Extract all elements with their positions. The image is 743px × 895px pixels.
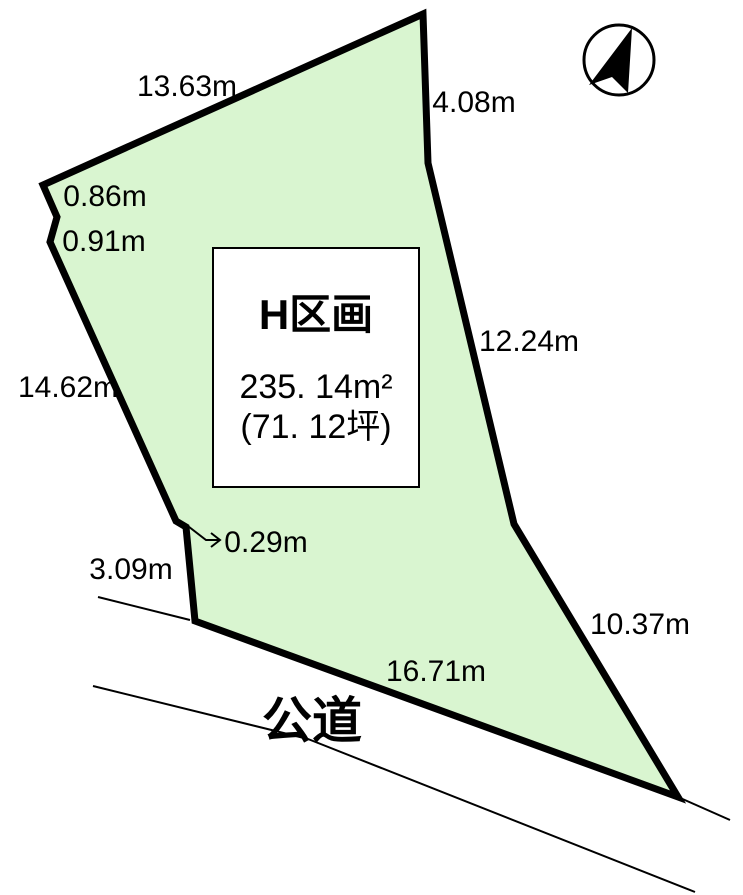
dimension-label-left-edge: 14.62m — [18, 373, 118, 403]
plot-diagram: 13.63m 4.08m 12.24m 10.37m 16.71m 14.62m… — [0, 0, 743, 895]
plot-info-box: H区画 235. 14m² (71. 12坪) — [212, 247, 420, 488]
dimension-label-lower-left-edge: 3.09m — [89, 555, 172, 585]
dimension-label-left-notch-upper: 0.86m — [63, 182, 146, 212]
dimension-label-step-width: 0.29m — [224, 528, 307, 558]
dimension-label-top-edge: 13.63m — [137, 72, 237, 102]
plot-title: H区画 — [259, 294, 373, 336]
dimension-label-left-notch-lower: 0.91m — [62, 227, 145, 257]
road-edge-line-upper-right — [678, 797, 730, 820]
road-label: 公道 — [262, 696, 362, 746]
plot-area-tsubo: (71. 12坪) — [240, 410, 391, 444]
north-arrow-icon — [584, 25, 654, 95]
road-edge-line-upper-left — [98, 597, 190, 620]
plot-area-sqm: 235. 14m² — [239, 370, 392, 404]
dimension-label-lower-right-edge: 10.37m — [590, 610, 690, 640]
dimension-label-bottom-edge: 16.71m — [386, 657, 486, 687]
dimension-label-upper-right-edge: 4.08m — [432, 88, 515, 118]
dimension-label-right-edge: 12.24m — [479, 327, 579, 357]
